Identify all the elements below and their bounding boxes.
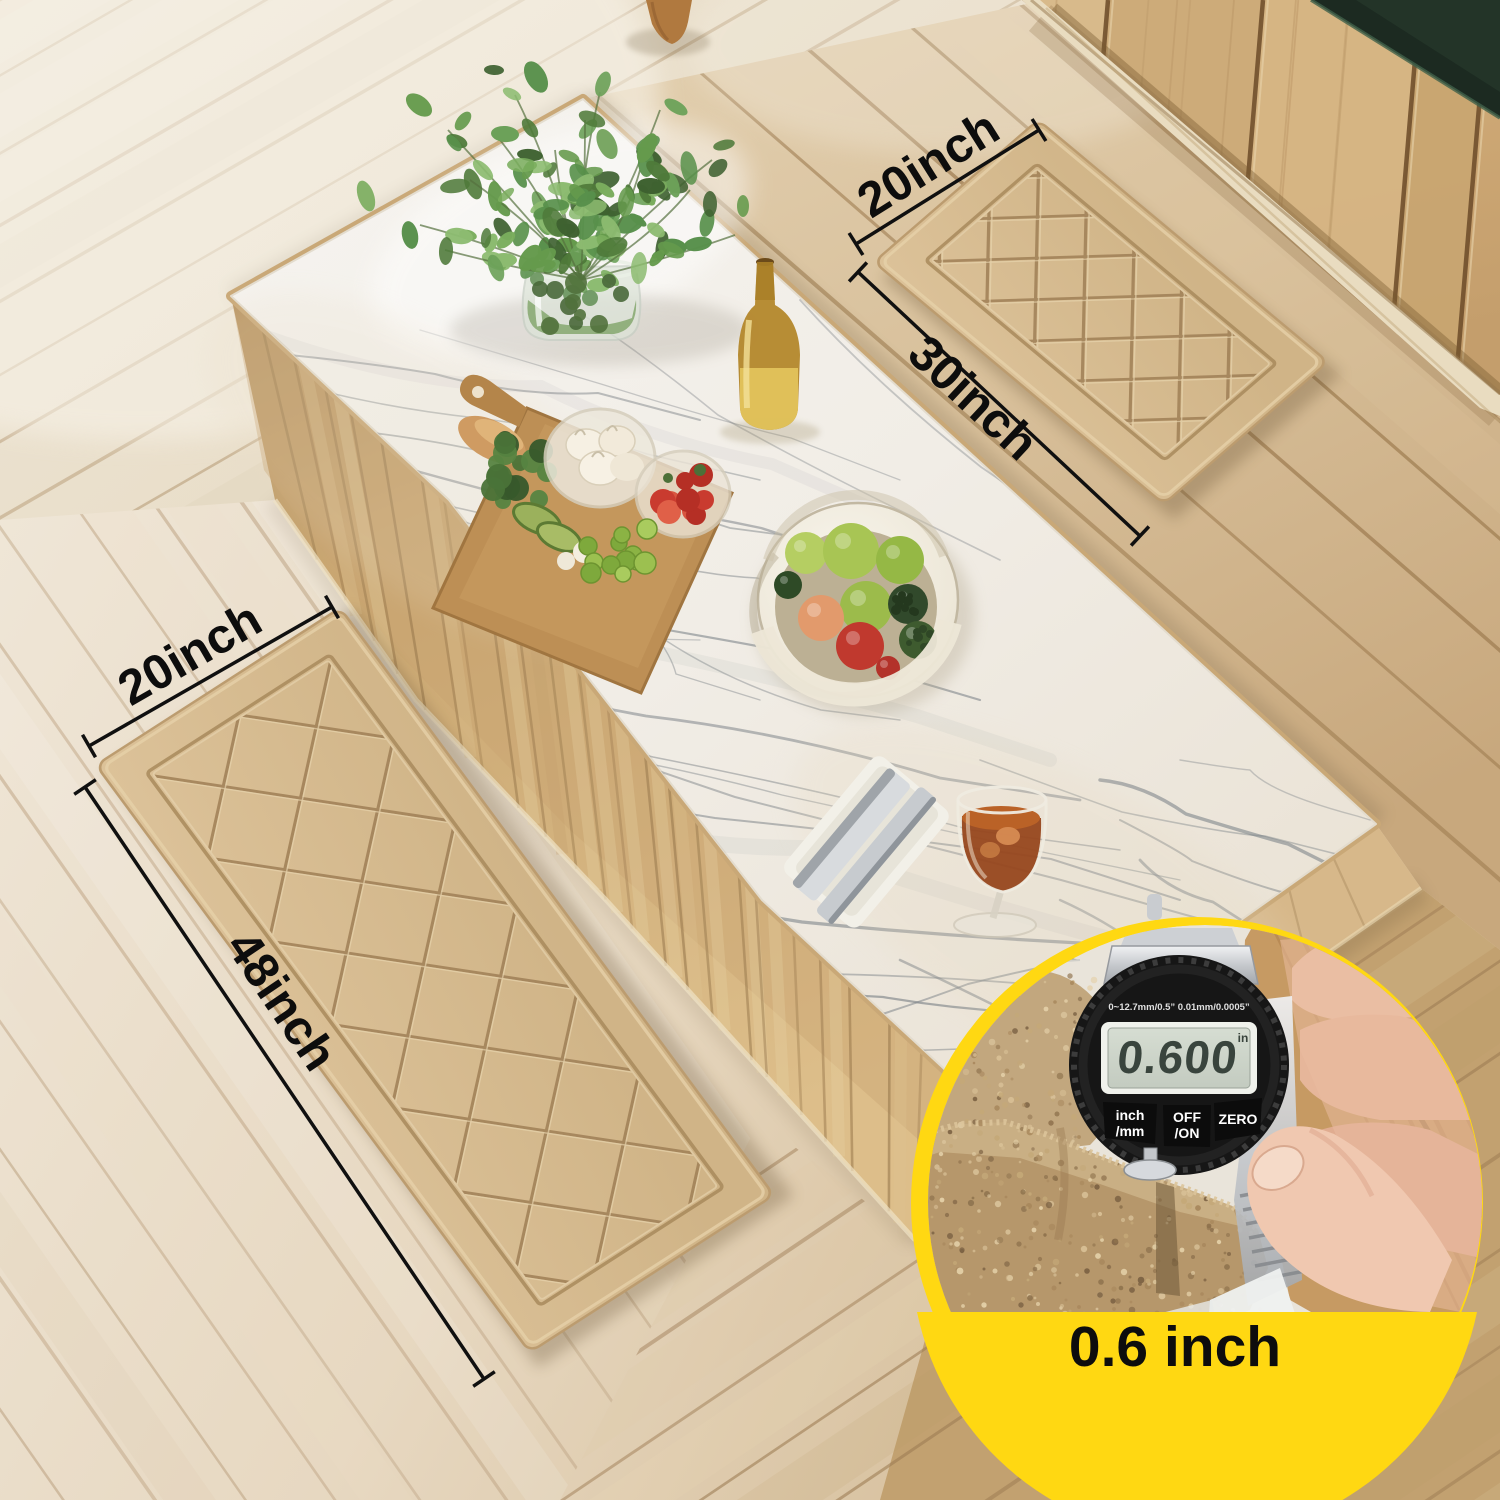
svg-text:ZERO: ZERO <box>1219 1111 1258 1127</box>
svg-text:0.600: 0.600 <box>1115 1031 1241 1083</box>
svg-text:/ON: /ON <box>1175 1125 1200 1141</box>
svg-text:/mm: /mm <box>1116 1123 1145 1139</box>
svg-text:inch: inch <box>1116 1107 1145 1123</box>
svg-text:in: in <box>1238 1031 1249 1045</box>
svg-text:0~12.7mm/0.5” 0.01mm/0.0005”: 0~12.7mm/0.5” 0.01mm/0.0005” <box>1108 1002 1250 1013</box>
svg-text:OFF: OFF <box>1173 1109 1201 1125</box>
svg-text:0.6 inch: 0.6 inch <box>1069 1315 1281 1379</box>
